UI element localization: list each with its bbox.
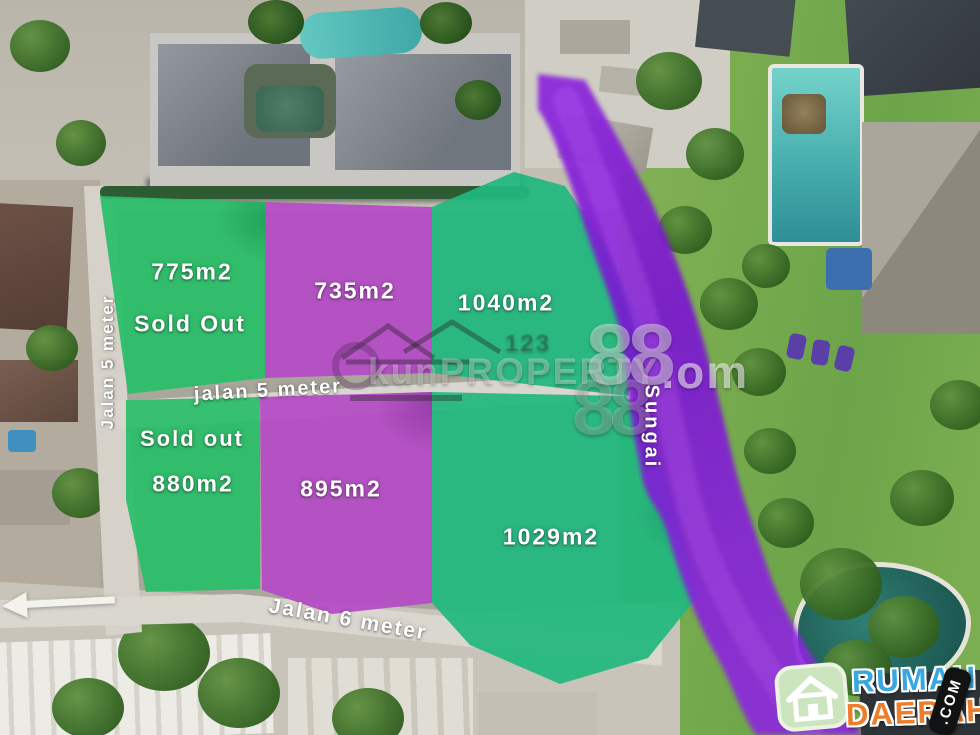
arrow-shaft <box>25 596 115 608</box>
plot-area-label-bottom-left: 880m2 <box>152 471 234 498</box>
watermark-text-row: kunPROPERTY .om <box>368 348 749 396</box>
arrow-head <box>1 592 27 619</box>
aerial-plot-map: kunPROPERTY .om 123 88 88 775m2 Sold Out… <box>0 0 980 735</box>
plot-area-label-top-left: 775m2 <box>151 259 233 286</box>
plot-status-label-bottom-left: Sold out <box>140 426 244 452</box>
plot-area-label-top-right: 1040m2 <box>458 290 554 317</box>
watermark-ghost-small: 123 <box>505 330 551 358</box>
plot-area-label-top-middle: 735m2 <box>314 278 396 305</box>
road-left-label: Jalan 5 meter <box>98 295 118 430</box>
watermark-suffix: .om <box>661 345 749 399</box>
plot-area-label-bottom-middle: 895m2 <box>300 476 382 503</box>
plot-area-label-bottom-right: 1029m2 <box>503 524 599 551</box>
plot-status-label-top-left: Sold Out <box>134 311 246 338</box>
river-label: Sungai <box>640 385 663 470</box>
logo-house-icon <box>771 659 853 735</box>
direction-arrow <box>0 581 126 627</box>
watermark-ghost-digits-echo: 88 <box>572 362 647 453</box>
